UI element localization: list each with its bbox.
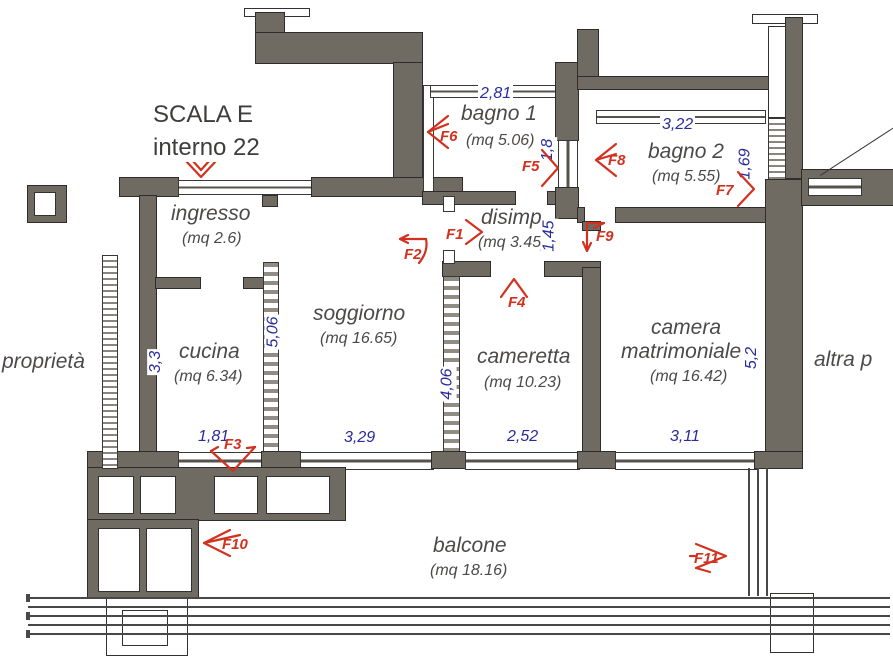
shaft-cell: [140, 476, 176, 514]
window-central: [558, 140, 578, 190]
leader-line: [820, 127, 893, 176]
marker-f1-arrow-icon: [464, 218, 484, 248]
room-label-camera-line2: matrimoniale: [618, 340, 744, 364]
entry-door-opening: [178, 180, 314, 195]
dim-cucina-height: 3,3: [146, 340, 166, 384]
wall: [256, 33, 422, 63]
wall-left: [140, 196, 156, 464]
wall-right: [766, 180, 802, 465]
room-area-disimpegno: (mq 3.45): [476, 234, 548, 252]
floor-plan: SCALA E interno 22 proprietà altra p ing…: [0, 0, 893, 670]
room-label-soggiorno: soggiorno: [310, 302, 408, 326]
dim-bagno2-width: 3,22: [660, 116, 695, 134]
boundary-left: [102, 255, 118, 469]
room-area-ingresso: (mq 2.6): [180, 230, 244, 248]
neighbor-right-label: altra p: [812, 348, 874, 372]
dim-disimpegno-depth: 1,45: [540, 214, 560, 258]
plan-title: SCALA E: [150, 101, 256, 129]
room-area-bagno2: (mq 5.55): [650, 168, 722, 186]
marker-f5-arrow-icon: [540, 146, 560, 188]
railing-tick: [26, 630, 30, 638]
dim-camera-window: 3,11: [668, 428, 702, 446]
shaft-cell: [98, 476, 134, 514]
room-area-soggiorno: (mq 16.65): [318, 330, 399, 348]
wall-bottom: [432, 452, 465, 468]
dim-soggiorno-height: 5,06: [264, 310, 284, 354]
railing-line: [28, 606, 890, 608]
room-label-bagno1: bagno 1: [458, 102, 540, 126]
marker-f1-label: F1: [446, 226, 464, 243]
wall-disimp-left: [443, 196, 455, 212]
shaft-column: [768, 26, 786, 118]
dim-cameretta-height: 4,06: [438, 362, 458, 406]
entry-wall: [120, 178, 178, 196]
marker-f9-label: F9: [596, 228, 614, 245]
wall-bottom: [578, 452, 615, 468]
marker-f10-label: F10: [222, 536, 248, 553]
wall-cap: [752, 14, 818, 24]
wall-left-cell: [34, 192, 56, 216]
marker-f6-label: F6: [440, 128, 458, 145]
room-label-bagno2: bagno 2: [645, 140, 727, 164]
wall: [578, 77, 768, 89]
room-label-camera-line1: camera: [648, 316, 724, 340]
wall-disimp-left: [443, 250, 455, 264]
railing-tick: [26, 612, 30, 620]
wall-bagno2-bottom: [616, 208, 768, 222]
plan-subtitle: interno 22: [150, 134, 263, 162]
room-label-balcone: balcone: [430, 534, 510, 558]
wall-bagno1-bottom: [548, 192, 556, 204]
balcony-edge: [766, 468, 768, 596]
room-label-cucina: cucina: [176, 340, 243, 364]
shaft-cell: [98, 528, 140, 592]
shaft-cell: [266, 476, 330, 514]
window-neighbor: [808, 178, 862, 196]
shaft-cell: [146, 528, 192, 592]
railing-tick: [26, 594, 30, 602]
room-area-cucina: (mq 6.34): [172, 368, 244, 386]
railing-line: [28, 624, 890, 626]
wall-camera-left: [583, 268, 600, 464]
shaft-cell: [214, 476, 258, 514]
marker-f7-arrow-icon: [736, 170, 756, 208]
room-area-bagno1: (mq 5.06): [464, 132, 536, 150]
wall-soggiorno-left: [263, 262, 279, 466]
dim-camera-height: 5,2: [742, 336, 762, 380]
railing-line: [28, 615, 890, 617]
window-shaft: [768, 118, 786, 182]
railing-line: [28, 597, 890, 599]
wall-bagno1-bottom: [423, 192, 515, 204]
marker-f11-arrow-icon: [688, 538, 736, 574]
balcony-edge: [757, 468, 759, 596]
wall-post: [263, 196, 277, 206]
room-label-ingresso: ingresso: [168, 202, 253, 226]
neighbor-left-label: proprietà: [0, 350, 87, 374]
wall-central: [556, 63, 578, 140]
wall-divider: [156, 278, 200, 288]
room-area-balcone: (mq 18.16): [428, 562, 509, 580]
balcony-step: [770, 593, 814, 653]
railing-line: [28, 633, 890, 635]
marker-f2-label: F2: [404, 246, 422, 263]
dim-soggiorno-window: 3,29: [342, 429, 377, 447]
wall-right-upper: [786, 18, 802, 178]
room-area-cameretta: (mq 10.23): [482, 374, 563, 392]
marker-f3-door-icon: [208, 444, 258, 474]
marker-f8-label: F8: [608, 152, 626, 169]
marker-f7-label: F7: [716, 182, 734, 199]
wall-cameretta-top: [443, 262, 490, 276]
marker-f4-label: F4: [508, 294, 526, 311]
balcony-edge: [748, 468, 750, 596]
window-cameretta: [465, 452, 580, 470]
dim-bagno1-width: 2,81: [478, 85, 513, 103]
room-area-camera: (mq 16.42): [648, 368, 729, 386]
wall-bottom: [262, 452, 300, 468]
wall: [394, 63, 422, 196]
marker-f5-label: F5: [522, 158, 540, 175]
room-label-cameretta: cameretta: [474, 345, 573, 369]
window-camera: [615, 452, 757, 470]
wall-bottom: [755, 452, 802, 468]
wall: [256, 13, 284, 35]
wall: [578, 30, 598, 80]
dim-cameretta-window: 2,52: [505, 428, 540, 446]
